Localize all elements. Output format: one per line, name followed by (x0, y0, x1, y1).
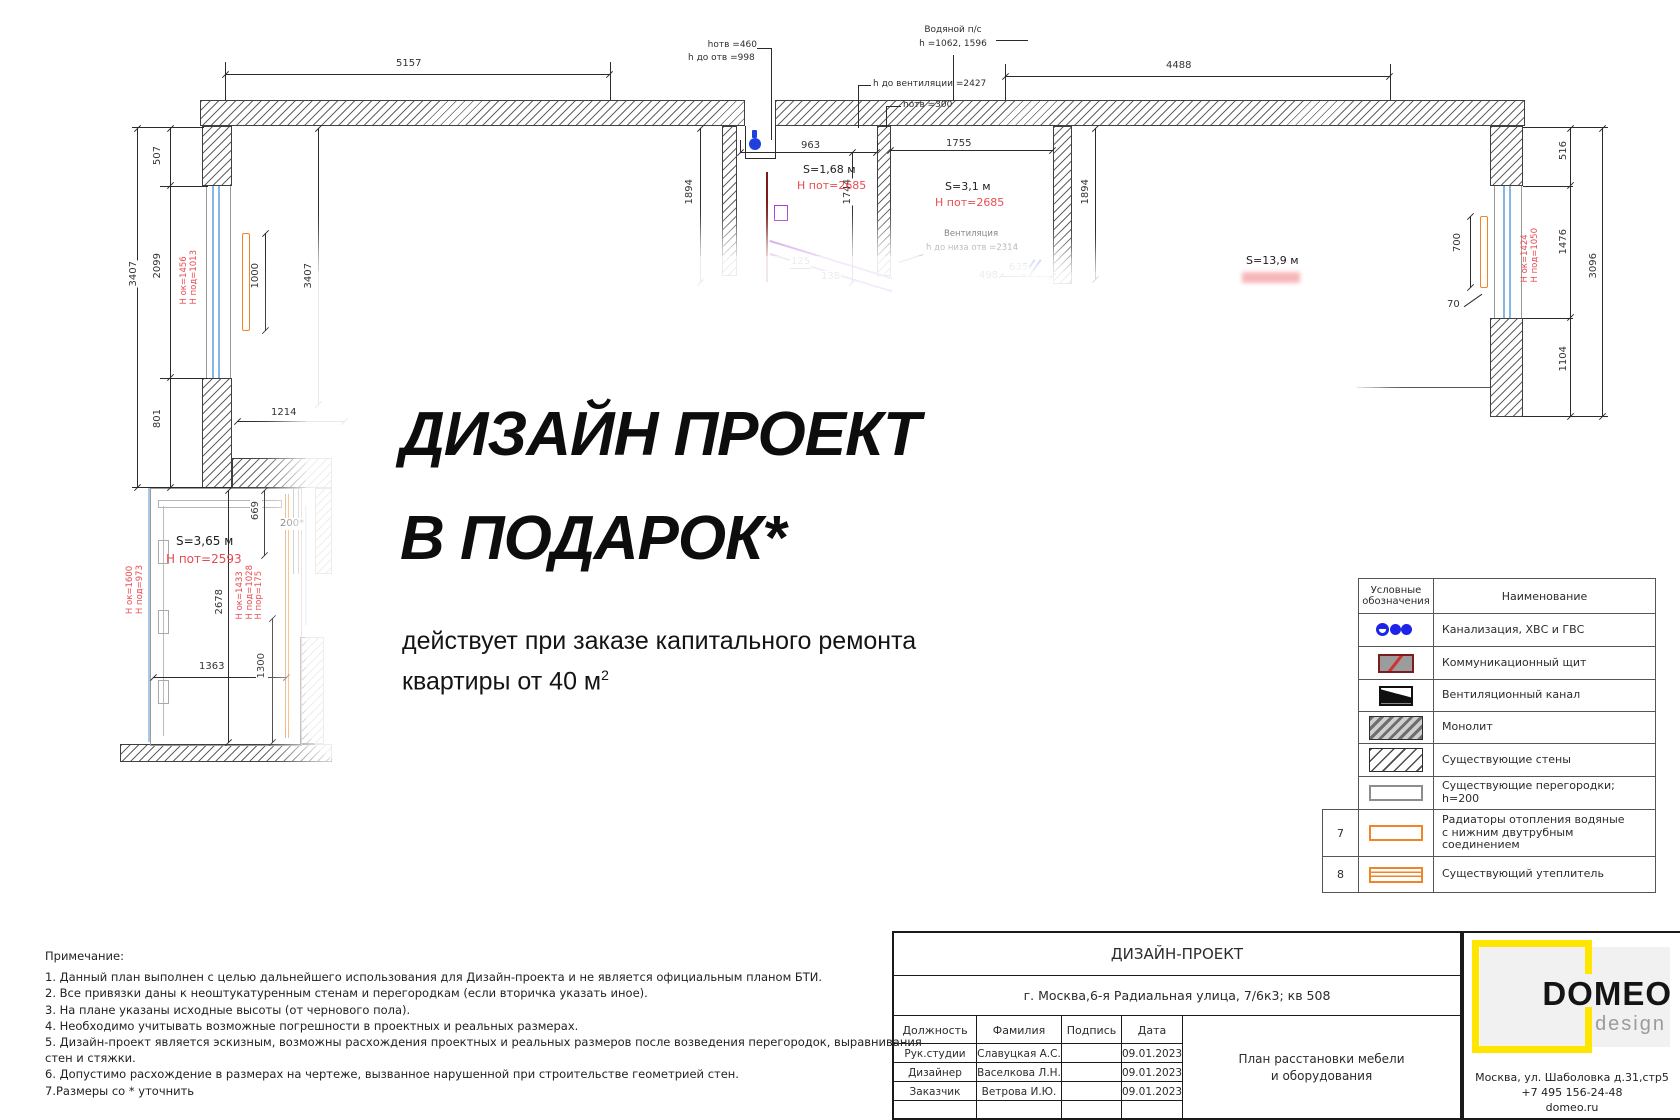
promo-overlay: ДИЗАЙН ПРОЕКТ В ПОДАРОК* действует при з… (306, 256, 1046, 764)
signature-cell: Подпись (1062, 1016, 1122, 1044)
legend-header-name: Наименование (1434, 579, 1655, 613)
balcony-glass (148, 488, 150, 742)
dim-line (1602, 128, 1603, 417)
wall (120, 744, 332, 762)
ext-line (1523, 186, 1573, 187)
annotation: Водяной п/с (917, 25, 989, 36)
ext-line (160, 378, 208, 379)
promo-title-line1: ДИЗАЙН ПРОЕКТ (400, 404, 920, 466)
room-area-label: S=3,65 м (176, 534, 233, 548)
dim-70: 70 (1446, 299, 1461, 311)
legend-label: Радиаторы отопления водяные с нижним дву… (1434, 810, 1655, 856)
legend-symbol-cell (1359, 647, 1434, 679)
dim-line (272, 618, 273, 743)
wall (1053, 126, 1072, 284)
wall (202, 126, 232, 186)
legend-symbol-cell (1359, 712, 1434, 743)
brand-logo-sub: design (1595, 1013, 1666, 1036)
dim-line (137, 128, 138, 488)
dim-516: 516 (1558, 140, 1570, 161)
annotation: hотв =460 (695, 40, 757, 51)
legend-rows: Канализация, ХВС и ГВСКоммуникационный щ… (1322, 613, 1656, 893)
legend-label: Коммуникационный щит (1434, 647, 1655, 679)
signature-cell (1062, 1044, 1122, 1063)
dim-700: 700 (1452, 232, 1464, 253)
insulation-line (285, 494, 286, 738)
wall (722, 126, 737, 276)
signature-row: Рук.студииСлавуцкая А.С.09.01.2023 (894, 1044, 1182, 1063)
ext-line (225, 62, 226, 100)
logo-frame (1472, 1046, 1592, 1053)
dim-4488: 4488 (1165, 60, 1192, 72)
legend-row: 8Существующий утеплитель (1358, 856, 1656, 893)
window-glass (1503, 186, 1505, 318)
signature-table: ДолжностьФамилияПодписьДатаРук.студииСла… (894, 1016, 1183, 1120)
room-height-label: Н пот=2685 (935, 196, 1004, 209)
dim-507: 507 (152, 145, 164, 166)
window-glass (212, 186, 214, 378)
dim-line (1005, 76, 1390, 77)
signature-cell (1062, 1101, 1122, 1120)
signature-cell: Фамилия (977, 1016, 1062, 1044)
logo-frame (1585, 940, 1592, 974)
dim-line (265, 233, 266, 331)
legend-header-symbols: Условные обозначения (1359, 579, 1434, 613)
ext-line (160, 186, 208, 187)
annotation: h =1062, 1596 (910, 39, 996, 50)
annotation: h до отв =998 (688, 53, 755, 64)
leader-line (757, 48, 771, 49)
niche-wall (745, 126, 746, 158)
dim-2678: 2678 (214, 588, 226, 615)
dim-line (264, 490, 265, 556)
annotation: Вентиляция (944, 229, 998, 240)
wall (775, 100, 1525, 126)
window-height-note: Н ок=1456 Н под=1013 (180, 250, 199, 304)
room-edge (1357, 387, 1490, 388)
signature-cell: Славуцкая А.С. (977, 1044, 1062, 1063)
partition-line (293, 488, 294, 574)
drawing-name-line: и оборудования (1271, 1068, 1372, 1085)
notes-heading: Примечание: (45, 948, 922, 964)
legend-label: Монолит (1434, 712, 1655, 743)
dim-line (1570, 128, 1571, 417)
company-phone: +7 495 156-24-48 (1464, 1085, 1680, 1100)
window-frame (230, 186, 231, 378)
title-block-address: г. Москва,6-я Радиальная улица, 7/6к3; к… (894, 976, 1460, 1016)
ext-line (610, 62, 611, 100)
dim-1214: 1214 (270, 407, 297, 419)
room-height-label: Н пот=2685 (797, 179, 866, 192)
note-line: 6. Допустимо расхождение в размерах на ч… (45, 1066, 922, 1082)
title-block: ДИЗАЙН-ПРОЕКТ г. Москва,6-я Радиальная у… (892, 931, 1462, 1120)
note-line: Н пор=175 (255, 565, 265, 619)
legend-label: Канализация, ХВС и ГВС (1434, 614, 1655, 646)
logo-frame (1585, 1007, 1592, 1053)
legend-symbol-cell (1359, 744, 1434, 776)
leader-line (886, 106, 901, 107)
partition-line (298, 488, 299, 574)
dim-1894-left: 1894 (684, 178, 696, 205)
plumbing-icon (748, 130, 762, 151)
floor-plan-sheet: 5157 4488 1214 963 1755 635 125 138 498 … (0, 0, 1680, 1120)
note-line: 1. Данный план выполнен с целью дальнейш… (45, 969, 922, 985)
legend-symbol-cell (1359, 680, 1434, 711)
signature-cell (1062, 1082, 1122, 1101)
dim-801: 801 (152, 408, 164, 429)
legend-row: Существующие стены (1358, 743, 1656, 777)
note-line: Н под=1050 (1531, 228, 1541, 282)
room-area-label: S=1,68 м (803, 163, 856, 176)
signature-row: ДизайнерВаселкова Л.Н.09.01.2023 (894, 1063, 1182, 1082)
legend-symbol-cell (1359, 810, 1434, 856)
dim-1104: 1104 (1558, 345, 1570, 372)
dim-line (890, 150, 1053, 151)
promo-subtitle-line2: квартиры от 40 м2 (402, 658, 609, 698)
wall (202, 378, 232, 488)
signature-row (894, 1101, 1182, 1120)
comm-icon (1378, 654, 1414, 673)
note-line: 2. Все привязки даны к неоштукатуренным … (45, 985, 922, 1001)
legend-header-line: Условные (1371, 585, 1422, 596)
legend-symbol-cell (1359, 614, 1434, 646)
dim-963: 963 (800, 140, 821, 152)
radiator (242, 233, 250, 331)
dim-3407-left: 3407 (128, 260, 140, 287)
window-frame (206, 186, 207, 378)
window-height-note: Н ок=1424 Н под=1050 (1521, 228, 1540, 282)
window-height-note: Н ок=1600 Н под=973 (126, 565, 145, 614)
window-glass (218, 186, 220, 378)
wall (200, 100, 745, 126)
legend-label: Вентиляционный канал (1434, 680, 1655, 711)
legend-label: Существующие стены (1434, 744, 1655, 776)
logo-box: DOMEO design Москва, ул. Шаболовка д.31,… (1462, 931, 1680, 1120)
dim-2099: 2099 (152, 252, 164, 279)
monolith-icon (1369, 716, 1423, 740)
wall (1490, 318, 1523, 417)
ext-line (1523, 318, 1573, 319)
title-block-grid: ДолжностьФамилияПодписьДатаРук.студииСла… (894, 1016, 1460, 1120)
brand-logo: DOMEO (1542, 975, 1672, 1013)
ext-line (1005, 64, 1006, 100)
legend-label: Существующие перегородки; h=200 (1434, 777, 1655, 809)
ext-line (877, 140, 878, 152)
ins-icon (1369, 867, 1423, 883)
walls-icon (1369, 748, 1423, 772)
legend-symbol-cell (1359, 777, 1434, 809)
annotation: h до вентиляции =2427 (873, 79, 986, 90)
annotation: hотв =300 (903, 100, 952, 111)
vent-icon (1379, 686, 1413, 706)
note-line: Н под=973 (136, 565, 146, 614)
dim-3096: 3096 (1588, 252, 1600, 279)
dim-3407-inner: 3407 (303, 262, 315, 289)
niche-wall (745, 158, 776, 159)
rad-icon (1369, 825, 1423, 841)
legend-symbol-cell (1359, 857, 1434, 892)
ext-line (740, 140, 741, 152)
leader-line (858, 85, 859, 128)
blurred-label (1242, 272, 1300, 283)
company-address: Москва, ул. Шаболовка д.31,стр5 (1464, 1070, 1680, 1085)
window-glass (1509, 186, 1511, 318)
ext-line (132, 487, 232, 488)
ext-line (1523, 127, 1608, 128)
signature-cell (1062, 1063, 1122, 1082)
note-line: 7.Размеры со * уточнить (45, 1083, 922, 1099)
wall (1490, 126, 1523, 186)
signature-cell: Васелкова Л.Н. (977, 1063, 1062, 1082)
company-site: domeo.ru (1464, 1100, 1680, 1115)
legend-label: Существующий утеплитель (1434, 857, 1655, 892)
legend-table: Условные обозначения Наименование Канали… (1322, 578, 1656, 893)
balcony-frame (158, 680, 169, 704)
dim-line (228, 490, 229, 743)
dim-1476: 1476 (1558, 228, 1570, 255)
legend-row: Коммуникационный щит (1358, 646, 1656, 680)
room-height-label: Н пот=2593 (166, 552, 242, 566)
dim-line (1095, 128, 1096, 280)
notes-block: Примечание:1. Данный план выполнен с цел… (45, 948, 922, 1099)
dim-200: 200* (279, 518, 305, 530)
legend-row: Монолит (1358, 711, 1656, 744)
legend-row: 7Радиаторы отопления водяные с нижним дв… (1358, 809, 1656, 857)
part-icon (1369, 785, 1423, 801)
note-line: 5. Дизайн-проект является эскизным, возм… (45, 1034, 922, 1050)
promo-subtitle-line1: действует при заказе капитального ремонт… (402, 624, 916, 658)
leader-line (886, 106, 887, 128)
signature-row: ЗаказчикВетрова И.Ю.09.01.2023 (894, 1082, 1182, 1101)
insulation-line (288, 494, 289, 738)
legend-row: Канализация, ХВС и ГВС (1358, 613, 1656, 647)
dim-669: 669 (250, 500, 262, 521)
dim-1363: 1363 (198, 661, 225, 673)
promo-subtitle-text: квартиры от 40 м (402, 667, 601, 695)
balcony-frame (158, 610, 169, 634)
promo-title-line2: В ПОДАРОК* (400, 508, 785, 570)
signature-row: ДолжностьФамилияПодписьДата (894, 1016, 1182, 1044)
ext-line (1390, 64, 1391, 100)
legend-row-number: 7 (1322, 809, 1359, 857)
note-line: 4. Необходимо учитывать возможные погреш… (45, 1018, 922, 1034)
sewer-icon (1376, 622, 1416, 638)
room-area-label: S=3,1 м (945, 180, 991, 193)
dim-line (740, 152, 877, 153)
drawing-name-line: План расстановки мебели (1238, 1051, 1404, 1068)
dim-1755: 1755 (945, 138, 972, 150)
leader-line (858, 85, 871, 86)
window-height-note: Н ок=1433 Н под=1028 Н пор=175 (236, 565, 265, 619)
blur-patch (1040, 272, 1362, 530)
niche-wall (775, 126, 776, 158)
note-line: 3. На плане указаны исходные высоты (от … (45, 1002, 922, 1018)
title-block-header: ДИЗАЙН-ПРОЕКТ (894, 933, 1460, 976)
legend-row: Вентиляционный канал (1358, 679, 1656, 712)
signature-cell: 09.01.2023 (1122, 1044, 1182, 1063)
legend-row-number: 8 (1322, 856, 1359, 893)
dim-1300: 1300 (256, 652, 268, 679)
promo-subtitle-sup: 2 (601, 667, 609, 683)
leader-line (771, 48, 772, 140)
room-area-label: S=13,9 м (1246, 254, 1299, 267)
window-frame (1494, 186, 1495, 318)
signature-cell: Ветрова И.Ю. (977, 1082, 1062, 1101)
leader-line (953, 55, 954, 100)
dim-line (1470, 216, 1471, 288)
signature-cell (977, 1101, 1062, 1120)
leader-line (996, 40, 1028, 41)
signature-cell: Дата (1122, 1016, 1182, 1044)
signature-cell (1122, 1101, 1182, 1120)
legend-header-line: обозначения (1362, 596, 1430, 607)
signature-cell: 09.01.2023 (1122, 1082, 1182, 1101)
pipe-box (774, 205, 788, 221)
dim-1000: 1000 (250, 262, 262, 289)
dim-line (225, 74, 610, 75)
logo-frame (1472, 940, 1592, 947)
legend-header: Условные обозначения Наименование (1358, 578, 1656, 614)
dim-line (170, 128, 171, 488)
note-line: Н под=1013 (190, 250, 200, 304)
note-line: стен и стяжки. (45, 1050, 922, 1066)
signature-cell (894, 1101, 977, 1120)
dim-1894-right: 1894 (1080, 178, 1092, 205)
ext-line (132, 127, 204, 128)
logo-frame (1472, 940, 1479, 1053)
signature-cell: 09.01.2023 (1122, 1063, 1182, 1082)
dim-5157: 5157 (395, 58, 422, 70)
annotation: h до низа отв =2314 (926, 243, 1018, 254)
leader-line (1464, 294, 1483, 307)
legend-row: Существующие перегородки; h=200 (1358, 776, 1656, 810)
ext-line (1523, 416, 1608, 417)
drawing-name: План расстановки мебели и оборудования (1183, 1016, 1460, 1120)
radiator (1480, 216, 1488, 288)
